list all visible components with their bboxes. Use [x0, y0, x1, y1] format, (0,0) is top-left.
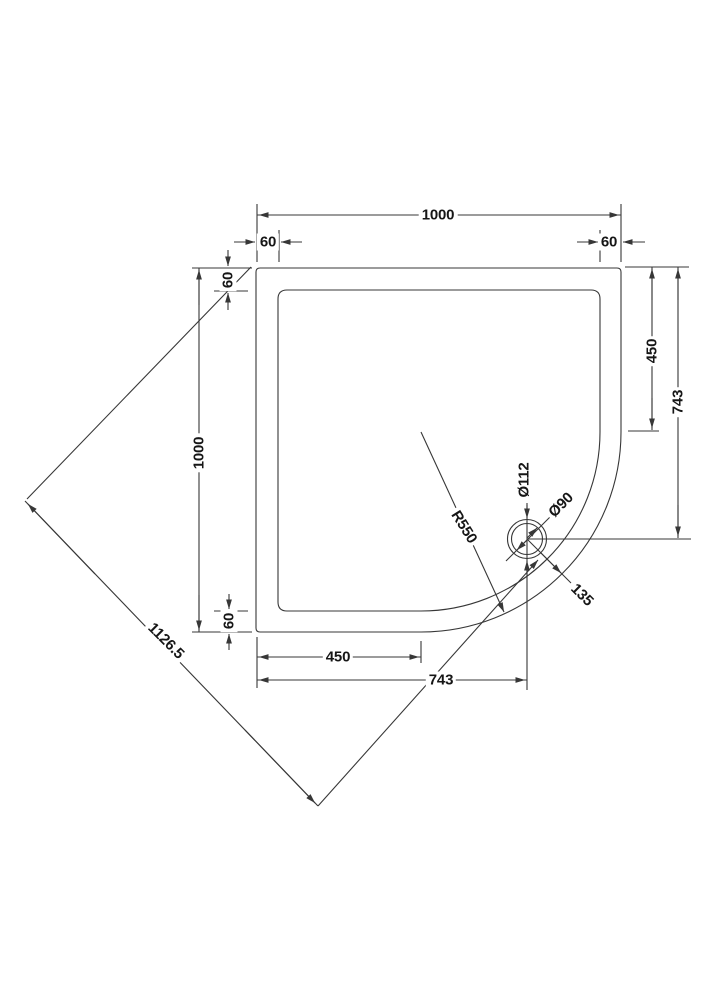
dim-bottom-side [257, 637, 527, 688]
label-top-offset-left: 60 [257, 234, 279, 251]
label-right-drain-offset: 743 [670, 387, 687, 417]
label-waste-outer-diameter: Ø112 [516, 459, 533, 500]
label-left-offset-bottom: 60 [221, 610, 238, 632]
tray-outer-outline [256, 268, 621, 632]
label-top-offset-right: 60 [598, 234, 620, 251]
technical-drawing-page: 1000 60 60 1000 60 60 450 743 450 743 11… [0, 0, 707, 1000]
label-left-offset-top: 60 [220, 269, 237, 291]
drain-centerlines [506, 503, 691, 690]
tray-inner-rim [278, 290, 600, 611]
label-top-width: 1000 [419, 207, 458, 224]
label-left-height: 1000 [191, 434, 208, 473]
label-bottom-drain-offset: 743 [426, 672, 456, 689]
drawing-canvas [0, 0, 707, 1000]
label-bottom-curve-start: 450 [323, 649, 353, 666]
label-right-curve-start: 450 [644, 336, 661, 366]
